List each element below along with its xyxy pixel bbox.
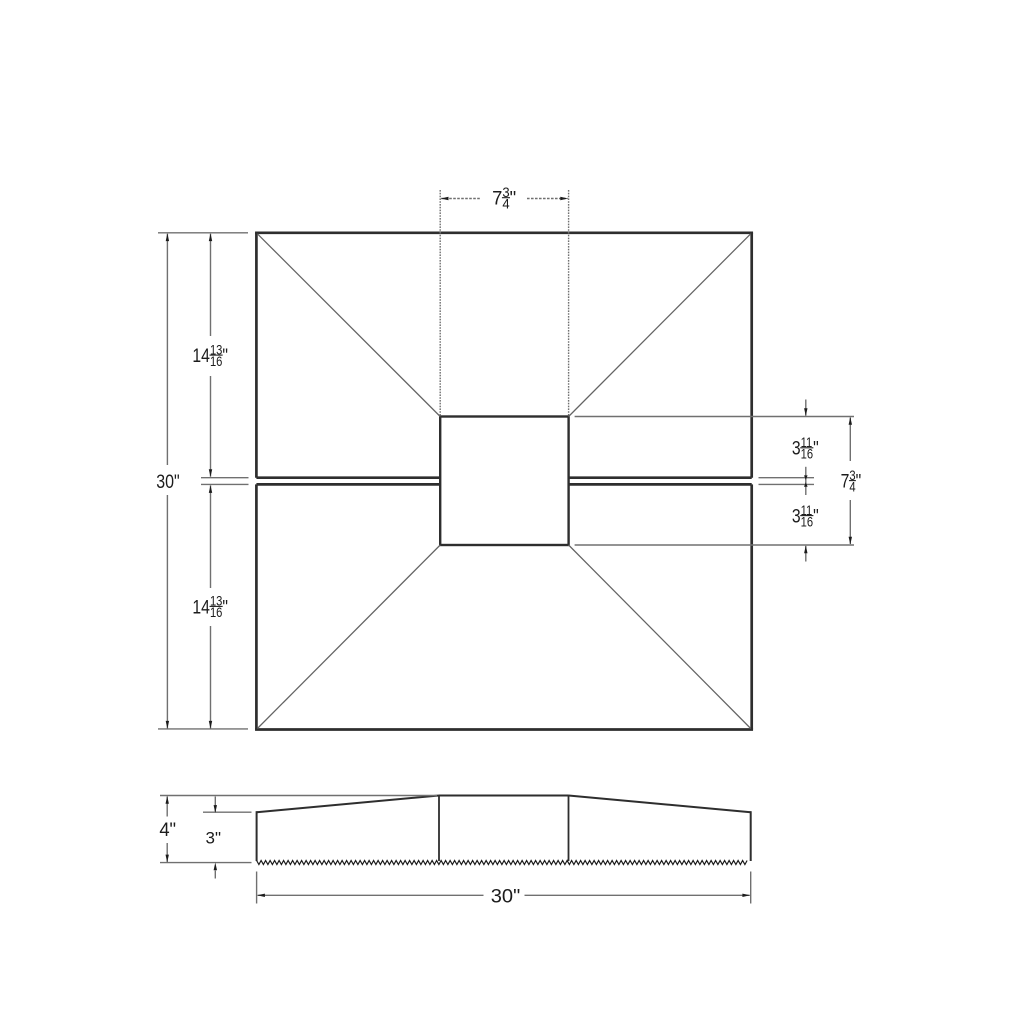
svg-text:14: 14	[192, 345, 210, 367]
svg-text:": "	[813, 437, 819, 459]
svg-text:": "	[222, 345, 228, 367]
svg-text:": "	[856, 470, 862, 492]
svg-text:": "	[813, 505, 819, 527]
svg-text:3: 3	[792, 437, 801, 459]
svg-text:16: 16	[801, 447, 814, 462]
svg-text:30": 30"	[491, 886, 520, 908]
svg-text:4: 4	[849, 479, 855, 494]
svg-text:30": 30"	[156, 471, 179, 493]
svg-text:14: 14	[192, 596, 210, 618]
svg-text:7: 7	[841, 470, 850, 492]
svg-text:4": 4"	[159, 819, 176, 840]
svg-text:": "	[510, 187, 517, 208]
svg-text:16: 16	[210, 605, 223, 620]
svg-text:4: 4	[502, 196, 509, 211]
svg-text:": "	[222, 596, 228, 618]
svg-text:16: 16	[210, 354, 223, 369]
svg-text:16: 16	[801, 514, 814, 529]
svg-text:7: 7	[492, 187, 502, 208]
svg-text:3": 3"	[206, 829, 222, 848]
svg-text:3: 3	[792, 505, 801, 527]
